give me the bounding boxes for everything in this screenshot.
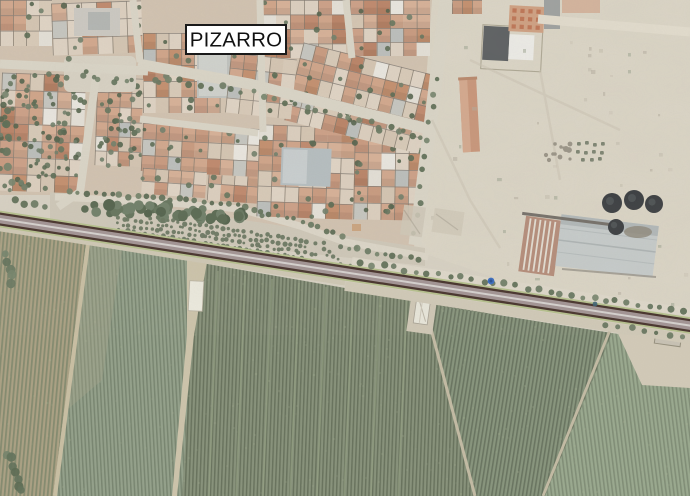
svg-text:PIZARRO: PIZARRO bbox=[190, 29, 283, 52]
